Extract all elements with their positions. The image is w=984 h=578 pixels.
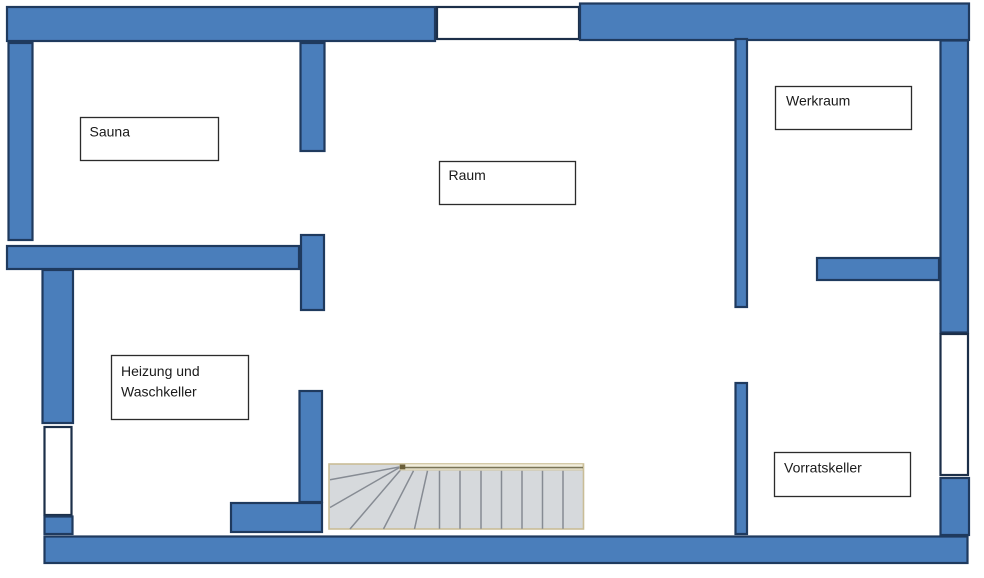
svg-text:Waschkeller: Waschkeller xyxy=(121,384,197,400)
svg-text:Werkraum: Werkraum xyxy=(786,93,850,109)
svg-text:Vorratskeller: Vorratskeller xyxy=(784,460,862,476)
svg-text:Raum: Raum xyxy=(449,167,486,183)
svg-text:Sauna: Sauna xyxy=(90,124,131,140)
svg-text:Heizung und: Heizung und xyxy=(121,363,200,379)
